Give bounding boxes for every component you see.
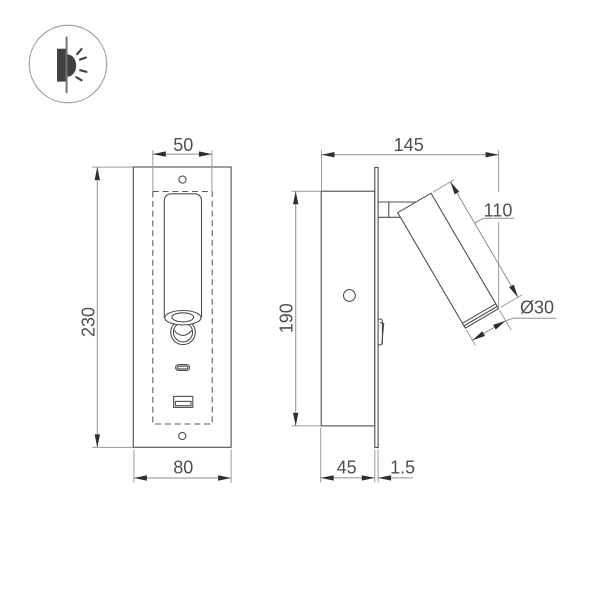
svg-text:190: 190	[276, 303, 296, 333]
svg-text:50: 50	[173, 135, 193, 155]
svg-text:1.5: 1.5	[390, 457, 415, 477]
svg-text:230: 230	[79, 307, 99, 337]
svg-text:80: 80	[173, 458, 193, 478]
svg-text:145: 145	[394, 135, 424, 155]
svg-text:45: 45	[337, 457, 357, 477]
svg-text:Ø30: Ø30	[520, 298, 554, 318]
svg-text:110: 110	[484, 201, 513, 221]
